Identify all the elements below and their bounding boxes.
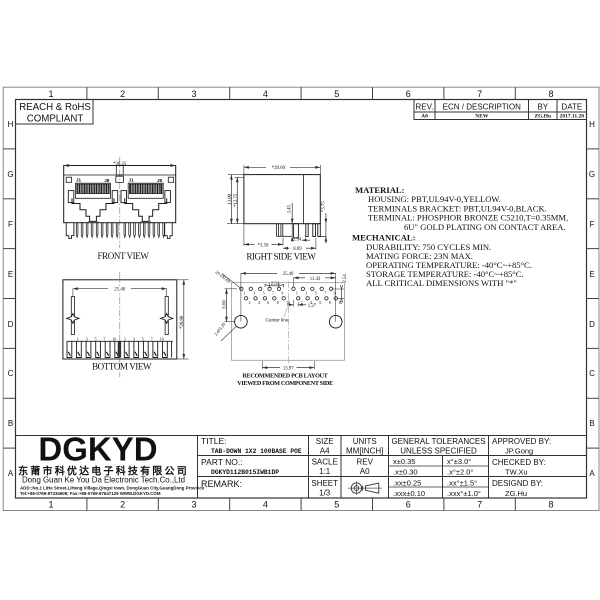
svg-text:A: A [589,469,595,478]
svg-text:4: 4 [263,89,268,99]
svg-text:7: 7 [272,290,274,295]
svg-text:7: 7 [103,336,105,341]
svg-text:GENERAL TOLERANCES: GENERAL TOLERANCES [391,437,485,446]
svg-text:*20.60: *20.60 [272,166,286,171]
svg-text:25.40: 25.40 [283,272,294,277]
svg-text:6: 6 [406,500,411,510]
svg-text:PART NO.:: PART NO.: [201,457,243,467]
svg-text:G: G [7,170,13,179]
svg-text:3.45: 3.45 [288,205,293,214]
svg-text:5: 5 [315,290,317,295]
svg-text:8: 8 [548,500,553,510]
svg-text:7: 7 [324,290,326,295]
svg-text:H: H [8,120,14,129]
svg-text:ZG.Hu: ZG.Hu [505,489,527,498]
svg-text:G: G [589,170,595,179]
svg-text:E: E [589,270,594,279]
svg-text:TW.Xu: TW.Xu [505,468,528,477]
svg-text:J8: J8 [104,178,110,183]
svg-text:.x°±2.0°: .x°±2.0° [447,468,473,477]
svg-text:TITLE:: TITLE: [201,436,227,446]
svg-text:UNLESS SPECIFIED: UNLESS SPECIFIED [400,447,477,456]
svg-text:.xxx°±1.0°: .xxx°±1.0° [447,489,481,498]
svg-text:x°±3.0°: x°±3.0° [447,457,471,466]
svg-text:5: 5 [334,89,339,99]
svg-text:1: 1 [244,290,246,295]
svg-text:*20.80: *20.80 [180,315,185,329]
svg-text:A4: A4 [320,447,330,456]
svg-text:10: 10 [112,336,116,341]
svg-text:E: E [8,270,13,279]
svg-text:H: H [589,120,595,129]
svg-text:JP.Gong: JP.Gong [505,447,533,456]
svg-text:Center line: Center line [265,318,289,324]
svg-text:VIEWED FROM COMPONENT SIDE: VIEWED FROM COMPONENT SIDE [237,380,333,387]
svg-text:BOTTOM VIEW: BOTTOM VIEW [92,362,152,372]
svg-text:SIZE: SIZE [316,437,334,446]
svg-text:B: B [8,419,13,428]
svg-text:6: 6 [319,300,321,305]
svg-text:J8: J8 [157,178,163,183]
svg-text:BY: BY [537,103,548,112]
svg-text:A0: A0 [360,467,370,476]
svg-text:1.27: 1.27 [308,304,317,309]
svg-text:1:1: 1:1 [319,467,331,476]
svg-text:1: 1 [296,290,298,295]
svg-text:SACLE: SACLE [312,458,338,467]
svg-text:7: 7 [151,336,153,341]
svg-text:5: 5 [263,290,265,295]
svg-text:1/3: 1/3 [319,489,331,498]
svg-text:6: 6 [406,89,411,99]
svg-text:C: C [8,369,14,378]
svg-text:3: 3 [191,89,196,99]
svg-text:2017.11.20: 2017.11.20 [560,114,585,120]
svg-text:1: 1 [124,336,126,341]
svg-text:4: 4 [263,500,268,510]
svg-text:9: 9 [334,290,336,295]
svg-text:Dong Guan Ke You Da Electronic: Dong Guan Ke You Da Electronic Tech.Co.,… [22,475,185,484]
svg-text:FRONT VIEW: FRONT VIEW [98,251,150,261]
svg-text:3: 3 [191,500,196,510]
svg-text:F: F [590,220,595,229]
svg-text:7: 7 [477,89,482,99]
svg-text:4: 4 [258,300,260,305]
svg-text:.x±0.30: .x±0.30 [393,468,418,477]
svg-text:5: 5 [95,336,97,341]
svg-text:A0: A0 [421,114,428,120]
svg-text:RECOMMENDED PCB LAYOUT: RECOMMENDED PCB LAYOUT [243,372,329,379]
svg-text:DGKYD: DGKYD [38,431,157,468]
svg-text:ALL CRITICAL DIMENSIONS WITH ": ALL CRITICAL DIMENSIONS WITH "*" [366,278,517,288]
svg-text:6: 6 [267,300,269,305]
svg-text:5: 5 [142,336,144,341]
svg-text:ZG.Hu: ZG.Hu [534,114,551,120]
svg-text:ADD::No.1 LiHe Street,LiHeng V: ADD::No.1 LiHe Street,LiHeng Village,Qin… [20,486,205,491]
svg-text:REV: REV [356,458,373,467]
svg-text:2: 2 [249,300,251,305]
svg-text:D: D [589,320,595,329]
svg-text:DESIGND BY:: DESIGND BY: [492,479,543,488]
svg-text:*12.75: *12.75 [234,193,239,207]
svg-text:C: C [589,369,595,378]
svg-text:RIGHT SIDE VIEW: RIGHT SIDE VIEW [246,252,316,262]
svg-text:x±0.35: x±0.35 [393,457,415,466]
svg-text:APPROVED BY:: APPROVED BY: [492,437,551,446]
svg-text:1: 1 [48,89,53,99]
svg-text:6.60: 6.60 [223,300,228,309]
svg-text:8: 8 [329,300,331,305]
svg-text:ECN / DESCRIPTION: ECN / DESCRIPTION [443,103,521,112]
svg-text:.xxx±0.10: .xxx±0.10 [393,489,425,498]
svg-text:A: A [8,469,14,478]
svg-text:F: F [8,220,13,229]
svg-text:J1: J1 [129,178,135,183]
svg-text:NEW: NEW [475,114,489,120]
svg-text:2.54: 2.54 [271,282,280,287]
svg-text:25.40: 25.40 [114,287,125,292]
svg-text:8: 8 [548,89,553,99]
svg-text:MM[INCH]: MM[INCH] [346,447,383,456]
svg-text:REV.: REV. [416,103,434,112]
svg-text:DATE: DATE [561,103,582,112]
svg-text:UNITS: UNITS [353,437,377,446]
svg-text:9: 9 [281,290,283,295]
svg-text:13.00: 13.00 [228,193,233,204]
svg-text:11.43: 11.43 [310,277,321,282]
svg-text:3: 3 [305,290,307,295]
svg-text:10: 10 [160,336,164,341]
svg-text:D: D [8,320,14,329]
svg-text:REMARK:: REMARK: [201,479,242,489]
svg-text:.xx°±1.5°: .xx°±1.5° [447,479,477,488]
svg-text:3: 3 [86,336,88,341]
svg-text:REACH & RoHS: REACH & RoHS [19,102,91,113]
svg-text:*3.50: *3.50 [258,243,269,248]
svg-text:COMPLIANT: COMPLIANT [27,114,84,125]
svg-text:3: 3 [253,290,255,295]
svg-text:SHEET: SHEET [311,479,338,488]
svg-text:6U" GOLD PLATING ON CONTACT AR: 6U" GOLD PLATING ON CONTACT AREA. [404,222,566,232]
svg-text:1: 1 [48,500,53,510]
svg-text:TAB-DOWN 1X2 100BASE POE: TAB-DOWN 1X2 100BASE POE [211,448,302,455]
svg-text:*30.25: *30.25 [113,162,127,167]
svg-text:8: 8 [277,300,279,305]
svg-text:CHECKED BY:: CHECKED BY: [492,458,546,467]
svg-text:13.97: 13.97 [283,367,294,372]
svg-text:Tel:+86-0769-87334608; Fax:+86: Tel:+86-0769-87334608; Fax:+86-0769-8764… [20,491,161,496]
svg-text:2: 2 [120,89,125,99]
svg-text:7: 7 [477,500,482,510]
svg-text:J1: J1 [76,178,82,183]
svg-text:2.54: 2.54 [293,238,302,243]
svg-text:5: 5 [334,500,339,510]
svg-text:2.54: 2.54 [343,274,348,283]
svg-text:1: 1 [77,336,79,341]
svg-text:2: 2 [120,500,125,510]
svg-text:DGKYD112B015IWB1DP: DGKYD112B015IWB1DP [211,469,279,476]
svg-text:.xx±0.25: .xx±0.25 [393,479,421,488]
svg-text:*3.75: *3.75 [321,201,326,212]
svg-text:3: 3 [133,336,135,341]
svg-text:B: B [589,419,594,428]
svg-text:10: 10 [338,300,342,305]
